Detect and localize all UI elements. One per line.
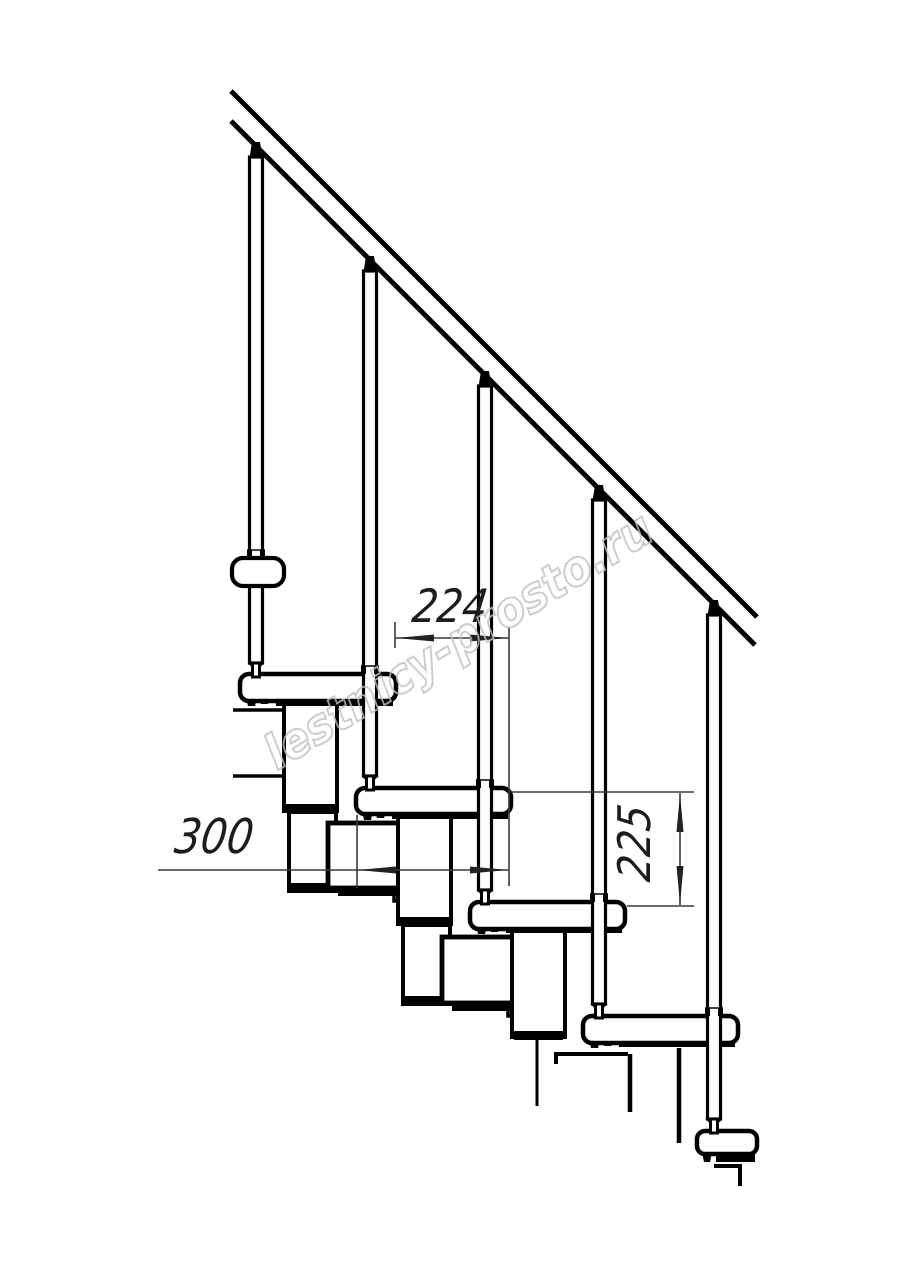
staircase-elevation-svg: 224 300 225 lestnicy-prosto.ru	[0, 0, 914, 1280]
baluster-3-neck	[482, 890, 489, 904]
module-box-2	[442, 937, 519, 1003]
module-joint-3	[514, 1031, 563, 1040]
baluster-2-neck	[367, 776, 374, 790]
baluster-5-shaft	[708, 615, 721, 1119]
dim-300-label: 300	[171, 808, 257, 865]
baluster-5-nub-right	[718, 1008, 723, 1016]
baluster-5-nub-left	[705, 1008, 710, 1016]
upper-flight-tread-fitting	[232, 558, 284, 586]
baluster-4-nub-right	[603, 894, 608, 902]
baluster-1-neck	[253, 663, 260, 677]
baluster-4-neck	[596, 1004, 603, 1018]
dim-225-arrow-up	[677, 794, 684, 832]
tread-5	[697, 1131, 757, 1154]
baluster-5	[705, 615, 723, 1133]
staircase-drawing-canvas: 224 300 225 lestnicy-prosto.ru	[0, 0, 914, 1280]
step-modules	[284, 703, 740, 1186]
baluster-3-nub-left	[476, 780, 481, 788]
handrail-top-line	[231, 91, 757, 617]
baluster-4-nub-left	[590, 894, 595, 902]
handrail	[231, 91, 757, 645]
dim-225-arrow-down	[677, 866, 684, 904]
bottom-bracket	[714, 1166, 740, 1186]
module-slab-3	[512, 929, 565, 1037]
baluster-5-neck	[711, 1119, 718, 1133]
baluster-3-nub-right	[489, 780, 494, 788]
dim-225-label: 225	[609, 801, 662, 884]
module-box-3-top	[556, 1054, 628, 1064]
baluster-1	[232, 157, 284, 677]
module-box-1	[328, 823, 405, 888]
